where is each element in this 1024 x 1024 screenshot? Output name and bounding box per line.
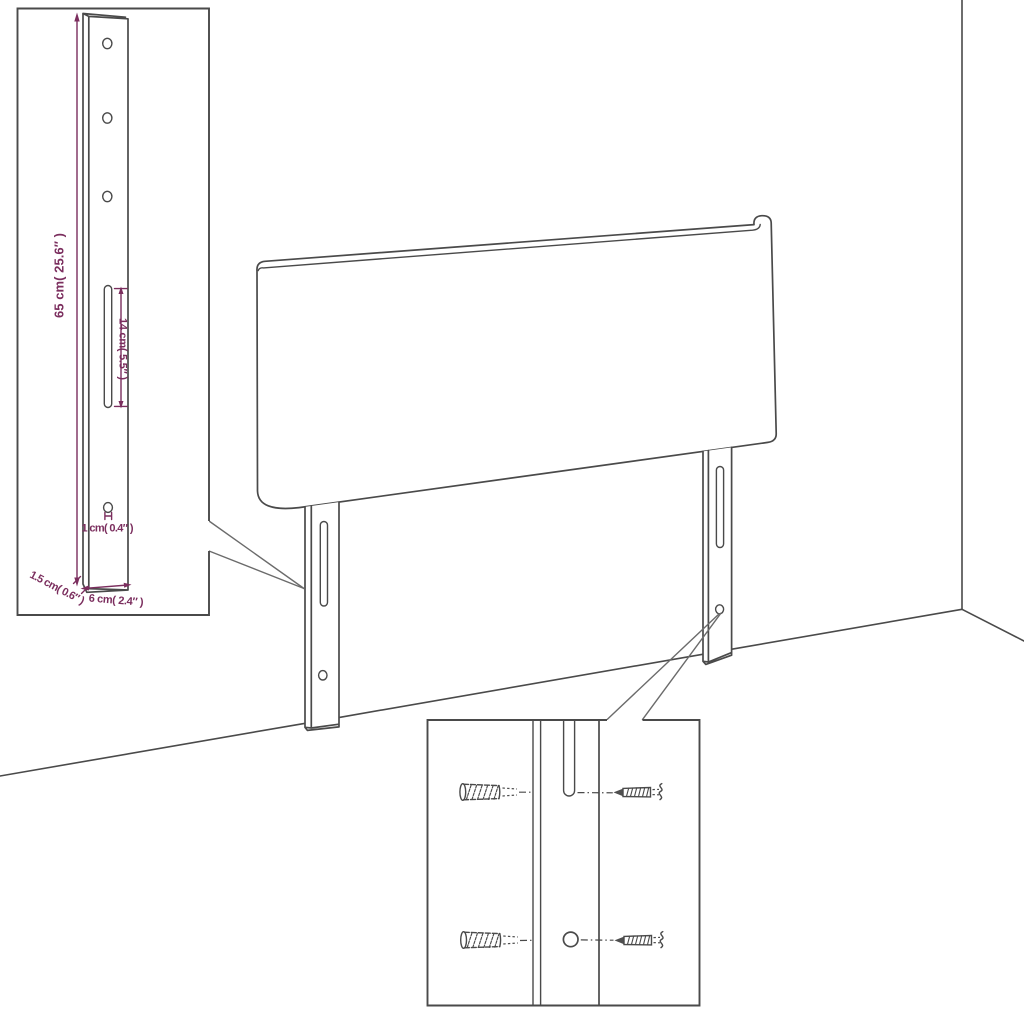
wall-plug-cap	[499, 786, 500, 799]
left-callout-wedge	[209, 521, 304, 589]
left-callout-line-upper	[209, 521, 304, 589]
floor-wall-line-right	[962, 609, 1024, 641]
hole-dim-label: 1 cm( 0.4″ )	[82, 523, 134, 535]
left-leg	[305, 502, 339, 730]
slot-dim-label: 14 cm( 5.5″ )	[117, 318, 129, 380]
panel-outline	[257, 216, 776, 509]
right-callout-line-right	[643, 613, 721, 719]
left-leg-body	[305, 502, 339, 730]
mounting-detail-inset	[428, 720, 700, 1006]
bracket-detail-inset: 65 cm( 25.6″ ) 14 cm( 5.5″ ) 1 cm( 0.4″ …	[18, 9, 210, 616]
left-callout-line-lower	[209, 551, 304, 589]
headboard-dimension-diagram: 65 cm( 25.6″ ) 14 cm( 5.5″ ) 1 cm( 0.4″ …	[0, 0, 1024, 1024]
right-callout-wedge	[607, 613, 721, 719]
headboard-panel	[257, 216, 776, 509]
height-dim-label: 65 cm( 25.6″ )	[52, 233, 67, 318]
right-callout-line-left	[607, 614, 719, 720]
